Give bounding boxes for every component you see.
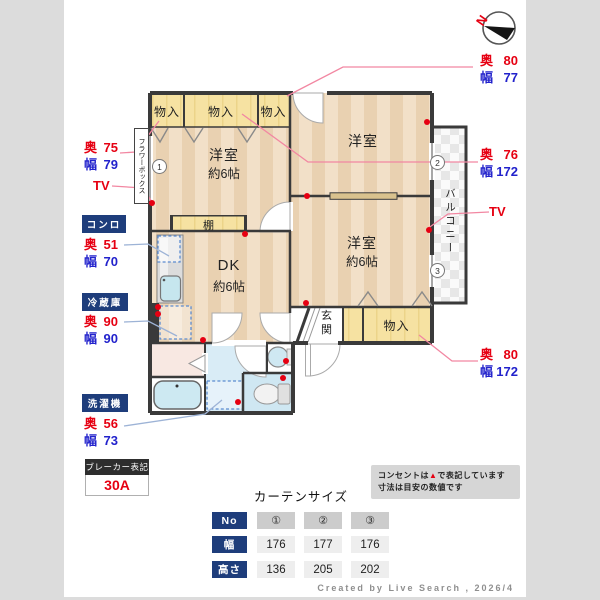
flower-box-label: フラワーボックス [134,128,149,204]
curtain-row-header-width: 幅 [212,536,247,553]
curtain-table-title: カーテンサイズ [251,486,351,505]
fridge-dims: 奥90 幅90 [84,313,118,347]
fridge-badge: 冷蔵庫 [82,293,128,311]
window-marker-3: 3 [430,263,445,278]
entrance-label: 玄関 [320,309,333,337]
washer-badge: 洗濯機 [82,394,128,412]
bedroom-top-name: 洋室 [323,131,403,151]
curtain-row-header-height: 高さ [212,561,247,578]
bedroom-left-name: 洋室 [184,145,264,165]
shelf-label: 棚 [170,217,247,233]
window-marker-2: 2 [430,155,445,170]
breaker-title: ブレーカー表記 [85,459,149,475]
curtain-width-1: 176 [257,536,295,553]
stove-badge: コンロ [82,215,126,233]
bathtub [154,381,201,409]
closet1-label: 物入 [150,103,184,120]
closet3-label: 物入 [257,103,290,120]
closet1-dims: 奥75 幅79 [84,139,118,173]
window-marker-1: 1 [152,159,167,174]
notice-box: コンセントは▲で表記しています 寸法は目安の数値です [371,465,520,499]
closet2-label: 物入 [184,103,258,120]
stove-space [158,236,180,262]
curtain-height-2: 205 [304,561,342,578]
curtain-width-3: 176 [351,536,389,553]
compass-icon [483,12,515,44]
curtain-height-3: 202 [351,561,389,578]
curtain-no-2: ② [304,512,342,529]
curtain-no-1: ① [257,512,295,529]
closet3-dims: 奥80 幅77 [480,52,518,86]
breaker-value: 30A [85,475,149,496]
breaker-box: ブレーカー表記 30A [85,459,149,496]
curtain-no-3: ③ [351,512,389,529]
stove-dims: 奥51 幅70 [84,236,118,270]
closet-bottom-dims: 奥80 幅172 [480,346,518,380]
closet-bottom-label: 物入 [363,317,430,334]
bedroom-right-name: 洋室 [322,233,402,253]
floorplan-page: N 物入 物入 物入 洋室 約6帖 洋室 洋室 約6帖 DK 約6帖 棚 物入 … [0,0,600,600]
dk-size: 約6帖 [189,276,269,295]
window-bar [330,193,397,200]
washbasin [268,347,293,367]
curtain-height-1: 136 [257,561,295,578]
bedroom-left-size: 約6帖 [184,163,264,182]
bedroom-right-size: 約6帖 [322,251,402,270]
toilet [254,384,290,404]
curtain-row-header-no: No [212,512,247,529]
balcony-label: バルコニー [443,176,458,268]
closet2-dims: 奥76 幅172 [480,146,518,180]
tv-left-label: TV [93,178,110,193]
credit-text: Created by Live Search , 2026/4 [280,583,514,593]
washer-dims: 奥56 幅73 [84,415,118,449]
fridge-space [160,306,191,339]
curtain-width-2: 177 [304,536,342,553]
dk-name: DK [189,257,269,274]
tv-right-label: TV [489,204,506,219]
